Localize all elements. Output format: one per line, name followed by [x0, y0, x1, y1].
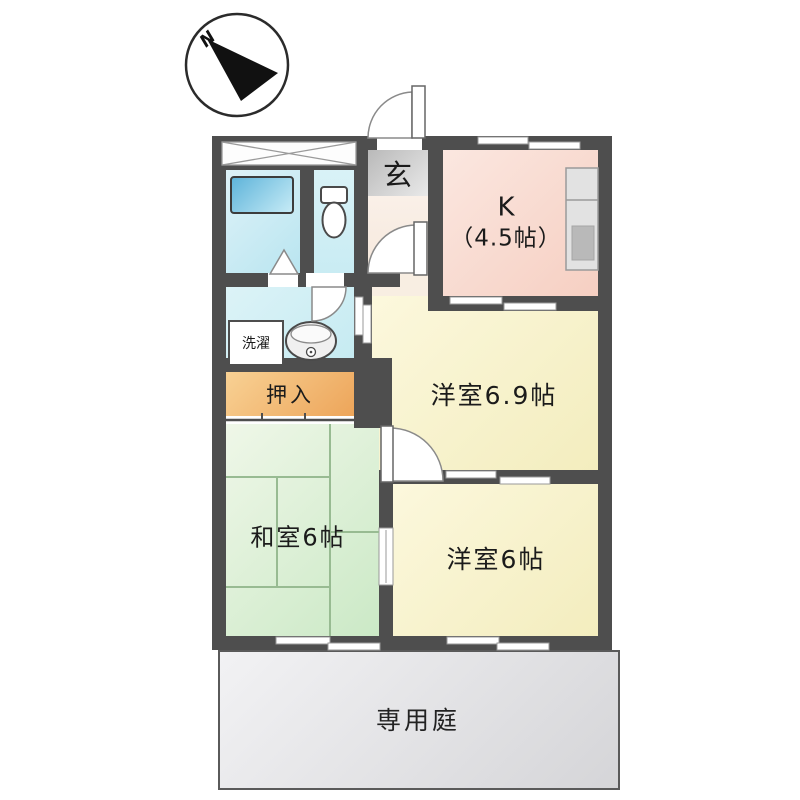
kitchen-sliding-door-1: [450, 297, 502, 304]
toilet-doorway: [306, 273, 344, 287]
western-room6-window-1: [447, 637, 499, 644]
kitchen-size: （4.5帖）: [450, 224, 562, 253]
japanese-room-window-1: [276, 637, 330, 644]
kitchen-sliding-door-2: [504, 303, 556, 310]
private-garden-label: 専用庭: [376, 701, 460, 737]
closet-fusuma-line: [226, 413, 354, 420]
hall-door-arc: [368, 225, 416, 273]
japanese-room-label: 和室6帖: [250, 518, 345, 553]
western-room-6-label: 洋室6帖: [447, 540, 546, 576]
kitchen-top-window: [478, 137, 528, 144]
laundry-box: 洗濯: [228, 320, 284, 366]
kitchen-name: K: [450, 191, 562, 224]
room-door-arc: [390, 428, 443, 481]
washbasin-icon: [286, 322, 336, 360]
compass-icon: N: [186, 14, 288, 116]
western-rooms-sliding-door-2: [500, 477, 550, 484]
western-rooms-sliding-door-1: [446, 471, 496, 478]
laundry-label: 洗濯: [242, 333, 270, 353]
western-room-69-label: 洋室6.9帖: [431, 376, 558, 412]
washroom-door-panel-2: [363, 305, 371, 343]
kitchen-top-window-2: [529, 142, 580, 149]
front-door-leaf: [412, 86, 425, 138]
plan-symbols-layer: N: [0, 0, 800, 800]
washroom-door-panel-1: [355, 297, 363, 335]
bath-doorway: [268, 273, 298, 287]
toilet-icon: [321, 187, 347, 238]
kitchen-label: K （4.5帖）: [450, 191, 562, 252]
fusuma-japanese-west: [379, 528, 393, 585]
closet-label: 押入: [266, 379, 314, 409]
toilet-door-arc: [312, 287, 346, 321]
bath-folding-door-icon: [270, 250, 298, 274]
kitchen-counter-icon: [566, 168, 598, 270]
western-room6-window-2: [497, 643, 549, 650]
hall-door-leaf: [414, 222, 427, 275]
japanese-room-window-2: [328, 643, 380, 650]
front-door-arc: [368, 92, 412, 138]
entrance-label: 玄: [383, 152, 413, 194]
room-door-leaf: [381, 426, 393, 482]
floor-plan: N: [0, 0, 800, 800]
crossed-box: [222, 142, 356, 165]
